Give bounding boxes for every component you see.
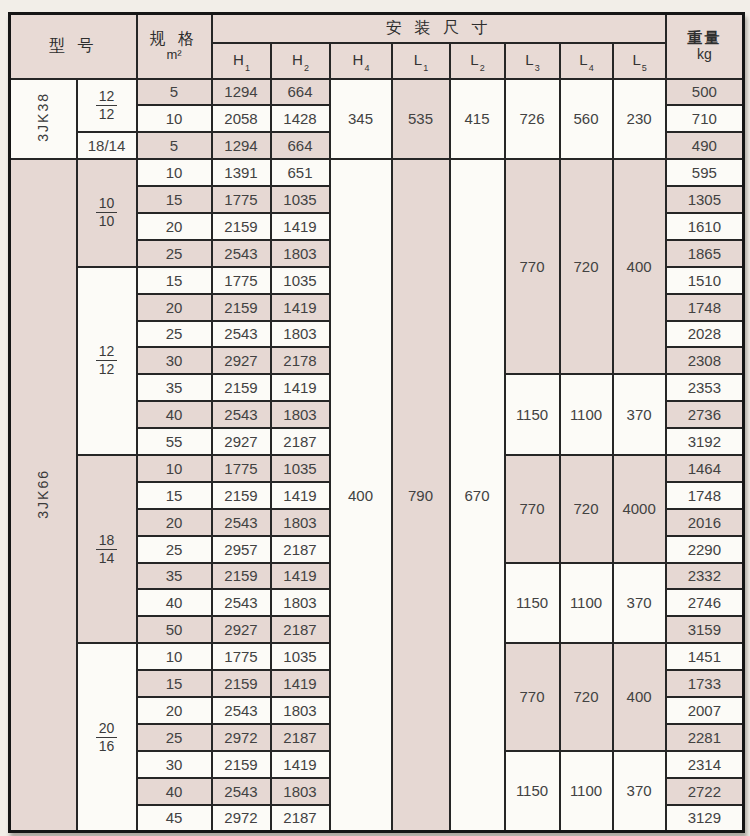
h2-cell: 1035 [271,643,330,670]
l4-cell: 720 [560,159,613,374]
spec-group-cell: 1010 [77,159,137,267]
l5-cell: 370 [613,374,666,455]
weight-cell: 3129 [666,805,744,832]
dim-header-h4: H4 [330,43,392,79]
h2-cell: 2187 [271,805,330,832]
l3-cell: 770 [505,159,560,374]
dim-header-l5: L5 [613,43,666,79]
h2-cell: 1419 [271,670,330,697]
h2-cell: 664 [271,132,330,159]
l3-cell: 1150 [505,374,560,455]
h2-cell: 1803 [271,240,330,267]
spec-group-cell: 1212 [77,79,137,133]
h2-cell: 1035 [271,455,330,482]
table-header: 型 号 规 格 m² 安 装 尺 寸 重量 kg H1H2H4L1L2L3L4L… [10,14,744,79]
weight-cell: 3159 [666,616,744,643]
spec-cell: 20 [137,213,212,240]
h1-cell: 2543 [212,321,271,348]
h1-cell: 2543 [212,778,271,805]
weight-cell: 2028 [666,321,744,348]
h2-cell: 2187 [271,616,330,643]
spec-group-cell: 2016 [77,643,137,831]
spec-cell: 45 [137,805,212,832]
h1-cell: 1775 [212,455,271,482]
l4-cell: 720 [560,455,613,563]
spec-cell: 5 [137,132,212,159]
h1-cell: 1775 [212,186,271,213]
weight-cell: 1464 [666,455,744,482]
spec-column-header: 规 格 m² [137,14,212,79]
weight-cell: 2281 [666,724,744,751]
h1-cell: 1294 [212,132,271,159]
h1-cell: 2972 [212,805,271,832]
spec-cell: 40 [137,778,212,805]
h2-cell: 1035 [271,267,330,294]
dim-header-h2: H2 [271,43,330,79]
l5-cell: 4000 [613,455,666,563]
weight-cell: 2332 [666,563,744,590]
model-label: 3JK38 [35,92,51,142]
l5-cell: 370 [613,563,666,644]
spec-cell: 20 [137,294,212,321]
h1-cell: 2159 [212,751,271,778]
h1-cell: 2159 [212,294,271,321]
spec-cell: 10 [137,159,212,186]
spec-group-cell: 18/14 [77,132,137,159]
dim-label: L5 [632,51,645,68]
l1-cell: 790 [392,159,450,831]
spec-cell: 25 [137,321,212,348]
spec-group-cell: 1212 [77,267,137,455]
spec-cell: 50 [137,616,212,643]
l4-cell: 1100 [560,374,613,455]
table-row: 3JK661010101391651400790670770720400595 [10,159,744,186]
h2-cell: 1803 [271,401,330,428]
weight-column-header: 重量 kg [666,14,744,79]
l3-cell: 770 [505,455,560,563]
weight-cell: 2007 [666,697,744,724]
weight-cell: 1748 [666,482,744,509]
dim-header-l4: L4 [560,43,613,79]
h1-cell: 2159 [212,482,271,509]
spec-cell: 10 [137,455,212,482]
h1-cell: 1775 [212,267,271,294]
l3-cell: 1150 [505,563,560,644]
h1-cell: 2543 [212,509,271,536]
h2-cell: 1419 [271,374,330,401]
weight-cell: 2746 [666,589,744,616]
weight-cell: 2016 [666,509,744,536]
h1-cell: 2543 [212,401,271,428]
spec-cell: 25 [137,724,212,751]
h2-cell: 1428 [271,105,330,132]
l5-cell: 400 [613,159,666,374]
h1-cell: 1294 [212,79,271,106]
h1-cell: 1391 [212,159,271,186]
l1-cell: 535 [392,79,450,160]
weight-cell: 3192 [666,428,744,455]
h2-cell: 1419 [271,751,330,778]
spec-cell: 35 [137,563,212,590]
table-body: 3JK3812125129466434553541572656023050010… [10,79,744,832]
spec-cell: 15 [137,186,212,213]
h2-cell: 1419 [271,563,330,590]
l2-cell: 415 [450,79,505,160]
h2-cell: 651 [271,159,330,186]
weight-cell: 1305 [666,186,744,213]
h1-cell: 2927 [212,347,271,374]
dim-header-h1: H1 [212,43,271,79]
weight-cell: 710 [666,105,744,132]
spec-cell: 20 [137,509,212,536]
model-cell-3jk66: 3JK66 [10,159,77,831]
spec-group-fraction: 2016 [96,721,118,754]
l4-cell: 560 [560,79,613,160]
weight-cell: 1733 [666,670,744,697]
h2-cell: 1803 [271,321,330,348]
model-label: 3JK66 [35,469,51,519]
weight-cell: 2308 [666,347,744,374]
spec-group-fraction: 1212 [96,344,118,377]
model-cell-3jk38: 3JK38 [10,79,77,160]
dim-header-l1: L1 [392,43,450,79]
h4-cell: 400 [330,159,392,831]
h1-cell: 2543 [212,240,271,267]
weight-cell: 2290 [666,536,744,563]
h1-cell: 2972 [212,724,271,751]
spec-header-label: 规 格 [138,31,211,46]
h1-cell: 2927 [212,616,271,643]
spec-cell: 15 [137,482,212,509]
h2-cell: 2178 [271,347,330,374]
spec-cell: 30 [137,347,212,374]
l4-cell: 720 [560,643,613,751]
h1-cell: 2927 [212,428,271,455]
h2-cell: 1419 [271,482,330,509]
dim-header-l2: L2 [450,43,505,79]
weight-cell: 2722 [666,778,744,805]
h2-cell: 2187 [271,536,330,563]
spec-cell: 35 [137,374,212,401]
weight-cell: 595 [666,159,744,186]
dim-label: H2 [292,51,308,68]
model-column-header: 型 号 [10,14,137,79]
spec-cell: 25 [137,240,212,267]
l3-cell: 1150 [505,751,560,832]
spec-group-cell: 1814 [77,455,137,643]
weight-cell: 2314 [666,751,744,778]
h2-cell: 1803 [271,589,330,616]
dim-header-l3: L3 [505,43,560,79]
dim-label: H1 [233,51,249,68]
spec-cell: 25 [137,536,212,563]
install-dims-header: 安 装 尺 寸 [212,14,666,43]
l3-cell: 726 [505,79,560,160]
dim-label: L4 [579,51,592,68]
spec-group-fraction: 1010 [96,196,118,229]
spec-cell: 15 [137,267,212,294]
spec-cell: 10 [137,105,212,132]
weight-cell: 2353 [666,374,744,401]
weight-cell: 1610 [666,213,744,240]
weight-cell: 490 [666,132,744,159]
h1-cell: 2159 [212,563,271,590]
h1-cell: 2957 [212,536,271,563]
spec-cell: 5 [137,79,212,106]
specification-table: 型 号 规 格 m² 安 装 尺 寸 重量 kg H1H2H4L1L2L3L4L… [8,12,745,833]
h2-cell: 1035 [271,186,330,213]
l4-cell: 1100 [560,751,613,832]
spec-group-label: 18/14 [88,137,126,154]
h2-cell: 1803 [271,697,330,724]
weight-cell: 1748 [666,294,744,321]
spec-cell: 40 [137,589,212,616]
weight-header-unit: kg [667,46,743,62]
dim-label: L1 [414,51,427,68]
weight-cell: 1865 [666,240,744,267]
weight-header-label: 重量 [667,30,743,46]
h1-cell: 2159 [212,213,271,240]
spec-header-unit: m² [138,47,211,62]
scanned-spec-sheet: 型 号 规 格 m² 安 装 尺 寸 重量 kg H1H2H4L1L2L3L4L… [0,12,750,836]
weight-cell: 500 [666,79,744,106]
spec-cell: 20 [137,697,212,724]
l5-cell: 370 [613,751,666,832]
h2-cell: 1803 [271,509,330,536]
h2-cell: 2187 [271,428,330,455]
spec-group-fraction: 1814 [96,533,118,566]
l2-cell: 670 [450,159,505,831]
spec-group-fraction: 1212 [96,89,118,122]
h2-cell: 1419 [271,213,330,240]
weight-cell: 1451 [666,643,744,670]
weight-cell: 2736 [666,401,744,428]
h1-cell: 2543 [212,589,271,616]
dim-label: L2 [470,51,483,68]
h4-cell: 345 [330,79,392,160]
table-row: 3JK38121251294664345535415726560230500 [10,79,744,106]
h2-cell: 1419 [271,294,330,321]
spec-cell: 15 [137,670,212,697]
l5-cell: 230 [613,79,666,160]
spec-cell: 40 [137,401,212,428]
h1-cell: 2159 [212,670,271,697]
h2-cell: 1803 [271,778,330,805]
spec-cell: 55 [137,428,212,455]
l3-cell: 770 [505,643,560,751]
h1-cell: 1775 [212,643,271,670]
h2-cell: 2187 [271,724,330,751]
h1-cell: 2058 [212,105,271,132]
dim-label: H4 [353,51,369,68]
weight-cell: 1510 [666,267,744,294]
l5-cell: 400 [613,643,666,751]
spec-cell: 30 [137,751,212,778]
l4-cell: 1100 [560,563,613,644]
spec-cell: 10 [137,643,212,670]
h1-cell: 2159 [212,374,271,401]
h1-cell: 2543 [212,697,271,724]
dim-label: L3 [525,51,538,68]
h2-cell: 664 [271,79,330,106]
